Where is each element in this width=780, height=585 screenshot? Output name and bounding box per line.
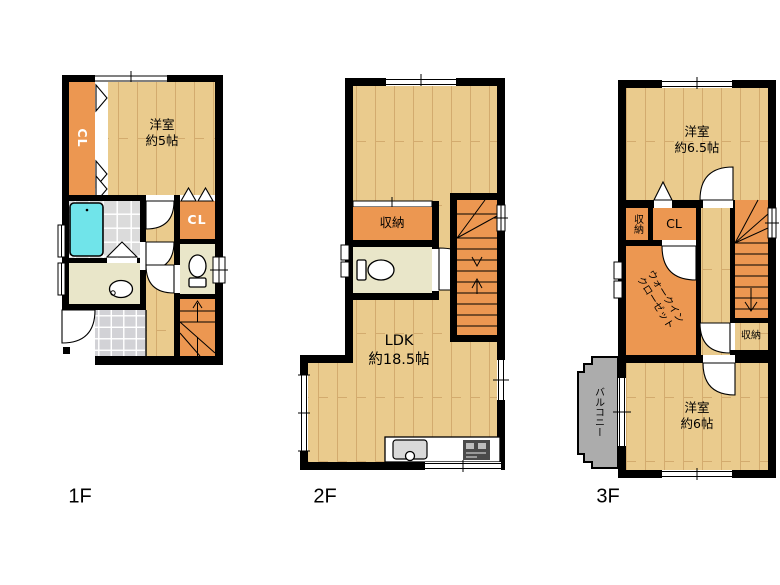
stairs-3f-winder — [735, 200, 768, 243]
bedroom2-3f-size: 約6帖 — [681, 416, 714, 432]
toilet-icon-2f — [357, 260, 394, 280]
bedroom2-3f-name: 洋室 — [684, 400, 709, 415]
floor-label-3f: 3F — [596, 486, 619, 509]
bedroom-1f-label: 洋室 約5帖 — [146, 117, 179, 150]
entrance-post — [63, 347, 70, 354]
floorplan-2f: 収納 LDK 約18.5帖 — [300, 78, 505, 470]
floor-label-2f: 2F — [313, 486, 336, 509]
closet1-label: CL — [74, 128, 90, 147]
window-top-2f — [386, 74, 456, 86]
bedroom-1f-name: 洋室 — [149, 117, 174, 132]
ldk-label: LDK 約18.5帖 — [368, 332, 429, 370]
stove-icon — [463, 440, 490, 460]
entrance-door-icon — [62, 310, 95, 343]
storage2-3f-label: 収納 — [741, 330, 761, 343]
closet-3f-label: CL — [666, 216, 682, 232]
window-toilet-1f — [210, 257, 228, 283]
bedroom1-3f-size: 約6.5帖 — [675, 140, 720, 156]
floorplan-page: CL 洋室 約5帖 CL — [0, 0, 780, 585]
storage1-3f-label: 収納 — [631, 214, 644, 234]
floorplan-1f: CL 洋室 約5帖 CL — [62, 75, 223, 365]
bedroom-1f-size: 約5帖 — [146, 133, 179, 149]
bath-door-gap — [107, 258, 137, 263]
toilet-icon-1f — [189, 255, 206, 287]
storage-2f-label: 収納 — [379, 215, 404, 231]
entrance-tile-floor — [95, 310, 145, 356]
floor-label-1f: 1F — [68, 486, 91, 509]
kitchen-counter-icon — [385, 437, 500, 462]
balcony-label: バルコニー — [592, 387, 605, 437]
closet2-label: CL — [187, 212, 206, 228]
bedroom2-3f-label: 洋室 約6帖 — [681, 400, 714, 433]
tub-drain-icon — [86, 209, 89, 212]
window-left-washroom — [58, 263, 65, 295]
bedroom1-3f-name: 洋室 — [684, 124, 709, 139]
ldk-name: LDK — [385, 333, 414, 349]
floorplan-3f: 洋室 約6.5帖 収納 CL ウォークイン クローゼット 収納 バルコニー 洋室… — [570, 78, 776, 478]
window-left-bath — [58, 225, 65, 257]
window-top-3f — [662, 77, 732, 89]
floorplan-2f-drawing — [300, 78, 505, 470]
ldk-floor-extension — [308, 363, 353, 462]
bedroom1-3f-label: 洋室 約6.5帖 — [675, 124, 720, 157]
window-top-1f — [95, 71, 167, 82]
kitchen-faucet-icon — [406, 452, 415, 461]
ldk-size: 約18.5帖 — [368, 351, 429, 370]
